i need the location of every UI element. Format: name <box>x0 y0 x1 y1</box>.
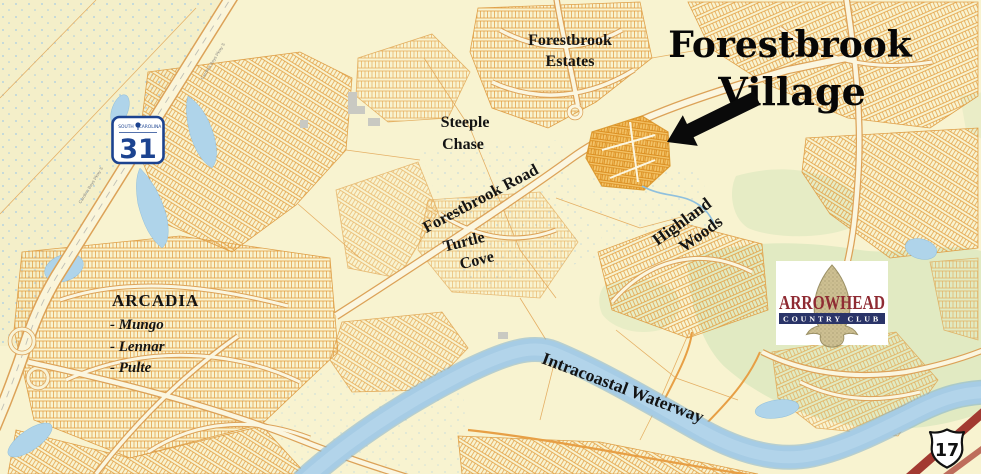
forestbrook-estates-label-line2: Estates <box>546 53 595 70</box>
us17-number: 17 <box>935 441 959 461</box>
arrowhead-country-club-logo: ARROWHEAD COUNTRY CLUB <box>776 261 888 347</box>
sc31-number: 31 <box>119 134 157 165</box>
map-canvas: Carolina Bays Pkwy S Carolina Bays Pkwy … <box>0 0 981 474</box>
forestbrook-estates-label-line1: Forestbrook <box>528 32 612 49</box>
arcadia-builder-mungo: - Mungo <box>110 317 164 333</box>
sc31-route-shield: SOUTH CAROLINA 31 <box>113 117 164 165</box>
arcadia-builder-lennar: - Lennar <box>110 339 165 355</box>
arrowhead-logo-name: ARROWHEAD <box>779 292 885 314</box>
steeple-chase-label-line2: Chase <box>442 136 484 153</box>
callout-title-line1: Forestbrook <box>668 24 913 66</box>
sc31-state-right: CAROLINA <box>139 124 162 130</box>
arcadia-builder-pulte: - Pulte <box>110 360 152 376</box>
arrowhead-logo-subtitle: COUNTRY CLUB <box>783 317 881 324</box>
arcadia-label: ARCADIA <box>112 291 199 310</box>
map-artwork: Carolina Bays Pkwy S Carolina Bays Pkwy … <box>0 0 981 474</box>
sc31-state-left: SOUTH <box>118 124 133 130</box>
steeple-chase-label-line1: Steeple <box>441 114 490 131</box>
